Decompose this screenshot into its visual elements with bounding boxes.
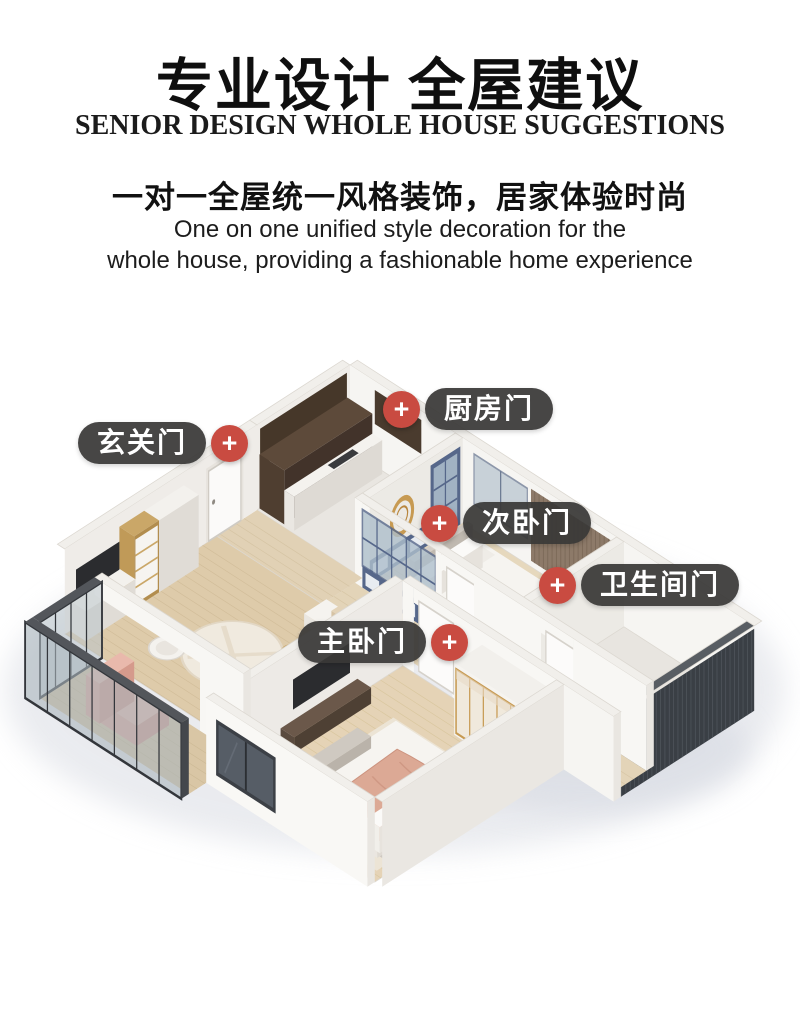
- kitchen-door-marker-button[interactable]: +: [383, 391, 420, 428]
- floor-plan-3d: [0, 0, 800, 1010]
- callout-kitchen-door: + 厨房门: [383, 388, 553, 430]
- master-bedroom-door-marker-button[interactable]: +: [431, 624, 468, 661]
- promo-page: 专业设计 全屋建议 SENIOR DESIGN WHOLE HOUSE SUGG…: [0, 0, 800, 1010]
- second-bedroom-door-label: 次卧门: [463, 502, 591, 544]
- entrance-door-marker-button[interactable]: +: [211, 425, 248, 462]
- callout-entrance-door: 玄关门 +: [78, 422, 248, 464]
- master-bedroom-door-label: 主卧门: [298, 621, 426, 663]
- callout-second-bedroom-door: + 次卧门: [421, 502, 591, 544]
- bathroom-door-label: 卫生间门: [581, 564, 739, 606]
- floor-plan-svg: [0, 0, 800, 1010]
- bathroom-door-marker-button[interactable]: +: [539, 567, 576, 604]
- second-bedroom-door-marker-button[interactable]: +: [421, 505, 458, 542]
- callout-master-bedroom-door: 主卧门 +: [298, 621, 468, 663]
- callout-bathroom-door: + 卫生间门: [539, 564, 739, 606]
- entrance-door-label: 玄关门: [78, 422, 206, 464]
- kitchen-door-label: 厨房门: [425, 388, 553, 430]
